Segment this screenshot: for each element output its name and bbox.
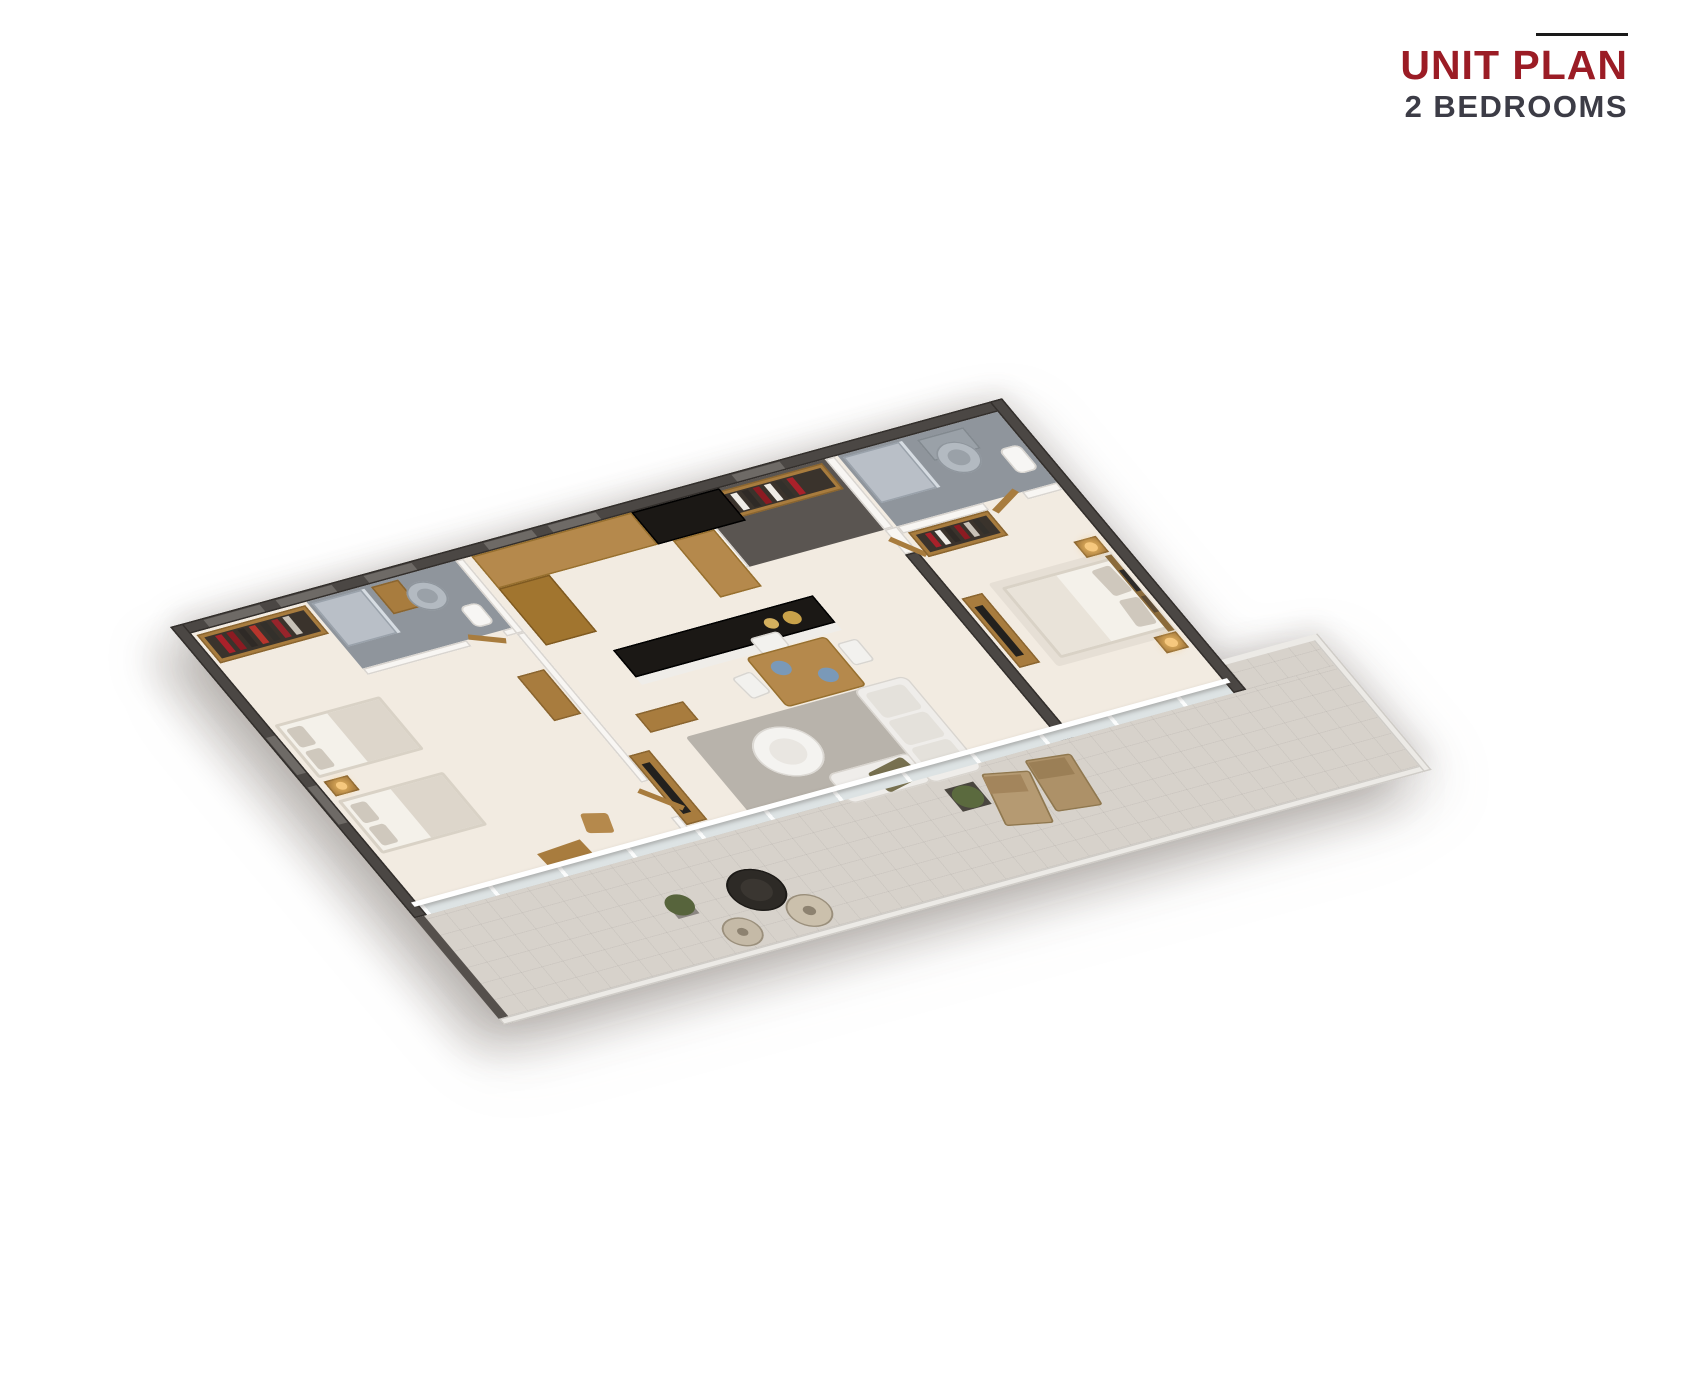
page-canvas: UNIT PLAN 2 BEDROOMS bbox=[0, 0, 1700, 1400]
floorplan-scene bbox=[0, 0, 1700, 1400]
sun-lounger-1-back bbox=[983, 774, 1029, 794]
floorplan-isometric-plan bbox=[170, 370, 1443, 1029]
